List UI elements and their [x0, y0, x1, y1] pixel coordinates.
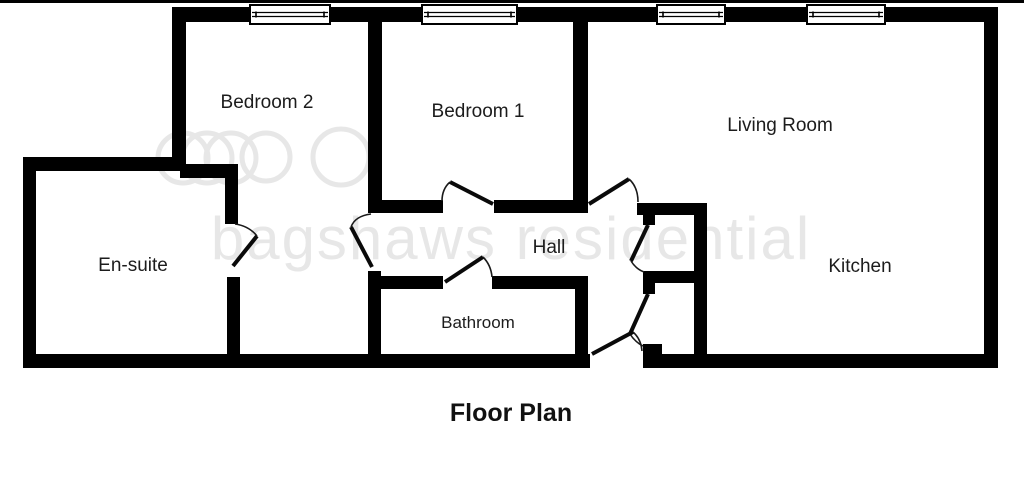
floor-plan-image: bagshaws residential	[0, 0, 1024, 496]
wall-ensuite-top	[23, 157, 186, 171]
wall-bedroom1-living-divider	[573, 22, 588, 206]
wall-cupboard-middle	[643, 271, 695, 283]
door-entrance	[592, 332, 642, 354]
image-top-border	[0, 0, 1024, 3]
wall-ensuite-right-upper	[225, 171, 238, 224]
wall-bedroom2-bedroom1-divider	[368, 22, 382, 213]
wall-cupboard-jamb-upper	[643, 215, 655, 225]
wall-ensuite-right-lower	[227, 277, 240, 368]
room-label-hall: Hall	[533, 237, 566, 258]
wall-bottom-left	[23, 354, 590, 368]
window-bedroom1	[422, 5, 517, 24]
wall-cupboard-top	[637, 203, 707, 215]
room-label-bathroom: Bathroom	[441, 313, 515, 332]
room-label-living-room: Living Room	[727, 115, 833, 136]
wall-entrance-jamb	[643, 344, 662, 358]
door-living-room	[589, 179, 638, 204]
wall-kitchen-left	[694, 203, 707, 365]
wall-ensuite-left	[23, 157, 36, 368]
watermark-ring	[242, 133, 290, 181]
wall-right	[984, 7, 998, 368]
wall-cupboard-jamb-lower	[643, 283, 655, 294]
wall-bathroom-top-left	[368, 276, 443, 289]
room-label-bedroom-2: Bedroom 2	[221, 92, 314, 113]
page-title: Floor Plan	[450, 399, 572, 427]
wall-bedroom2-left	[172, 7, 186, 171]
watermark-ring	[313, 129, 369, 185]
window-bedroom2	[250, 5, 330, 24]
watermark-text: bagshaws residential	[211, 205, 811, 272]
wall-bedroom1-bottom-left	[368, 200, 443, 213]
floor-plan-canvas: bagshaws residential	[0, 0, 1024, 496]
window-living-left	[657, 5, 725, 24]
window-living-right	[807, 5, 885, 24]
door-bedroom1	[442, 182, 493, 204]
room-label-en-suite: En-suite	[98, 255, 168, 276]
room-label-kitchen: Kitchen	[828, 256, 891, 277]
wall-bathroom-right	[575, 276, 588, 358]
wall-bathroom-top-right	[492, 276, 588, 289]
room-label-bedroom-1: Bedroom 1	[432, 101, 525, 122]
